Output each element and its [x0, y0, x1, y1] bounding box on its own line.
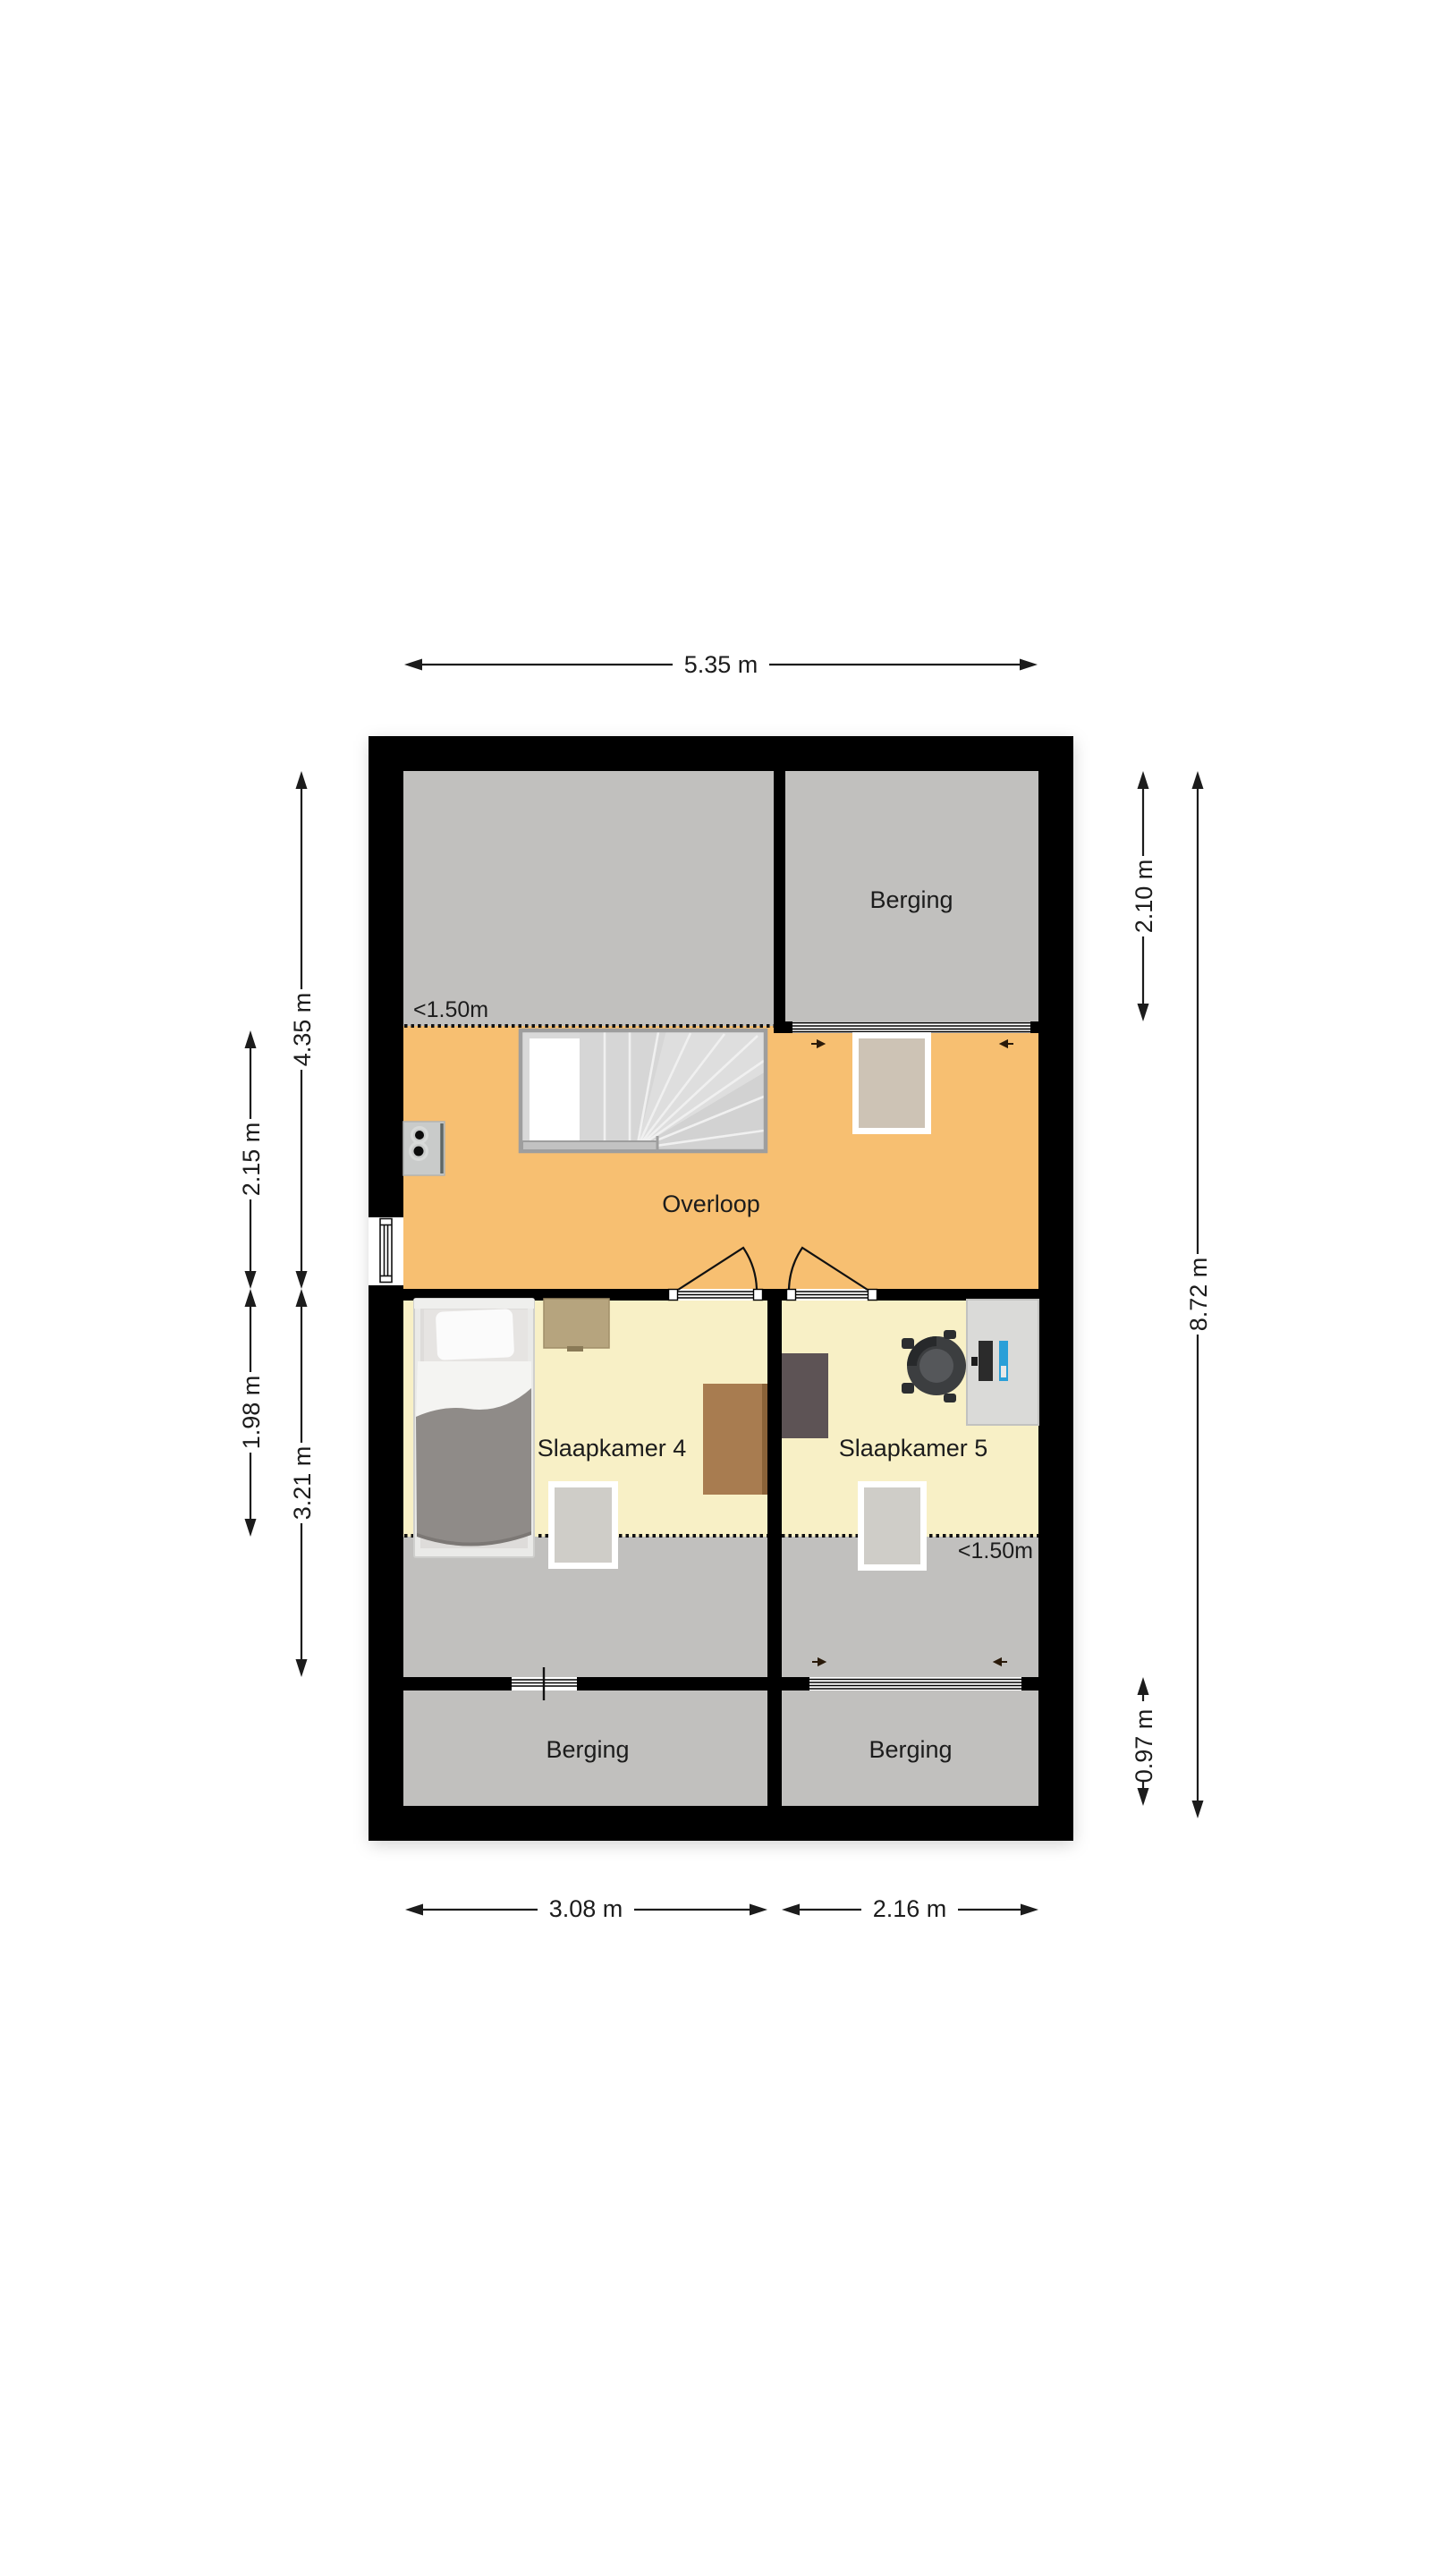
svg-text:Berging: Berging: [869, 1736, 952, 1763]
svg-text:2.10 m: 2.10 m: [1131, 860, 1157, 934]
svg-text:3.08 m: 3.08 m: [549, 1895, 623, 1922]
svg-text:<1.50m: <1.50m: [413, 997, 488, 1022]
svg-text:1.98 m: 1.98 m: [238, 1376, 265, 1450]
svg-text:Overloop: Overloop: [662, 1191, 760, 1217]
svg-text:2.15 m: 2.15 m: [238, 1123, 265, 1197]
svg-text:Slaapkamer 4: Slaapkamer 4: [538, 1435, 687, 1462]
svg-text:8.72 m: 8.72 m: [1185, 1258, 1212, 1332]
svg-text:2.16 m: 2.16 m: [873, 1895, 947, 1922]
svg-text:0.97 m: 0.97 m: [1131, 1709, 1157, 1784]
svg-text:4.35 m: 4.35 m: [289, 993, 316, 1067]
svg-text:Slaapkamer 5: Slaapkamer 5: [839, 1435, 988, 1462]
svg-text:Berging: Berging: [869, 886, 953, 913]
svg-text:Berging: Berging: [546, 1736, 629, 1763]
svg-text:3.21 m: 3.21 m: [289, 1446, 316, 1521]
svg-text:5.35 m: 5.35 m: [684, 651, 758, 678]
svg-text:<1.50m: <1.50m: [958, 1538, 1033, 1563]
